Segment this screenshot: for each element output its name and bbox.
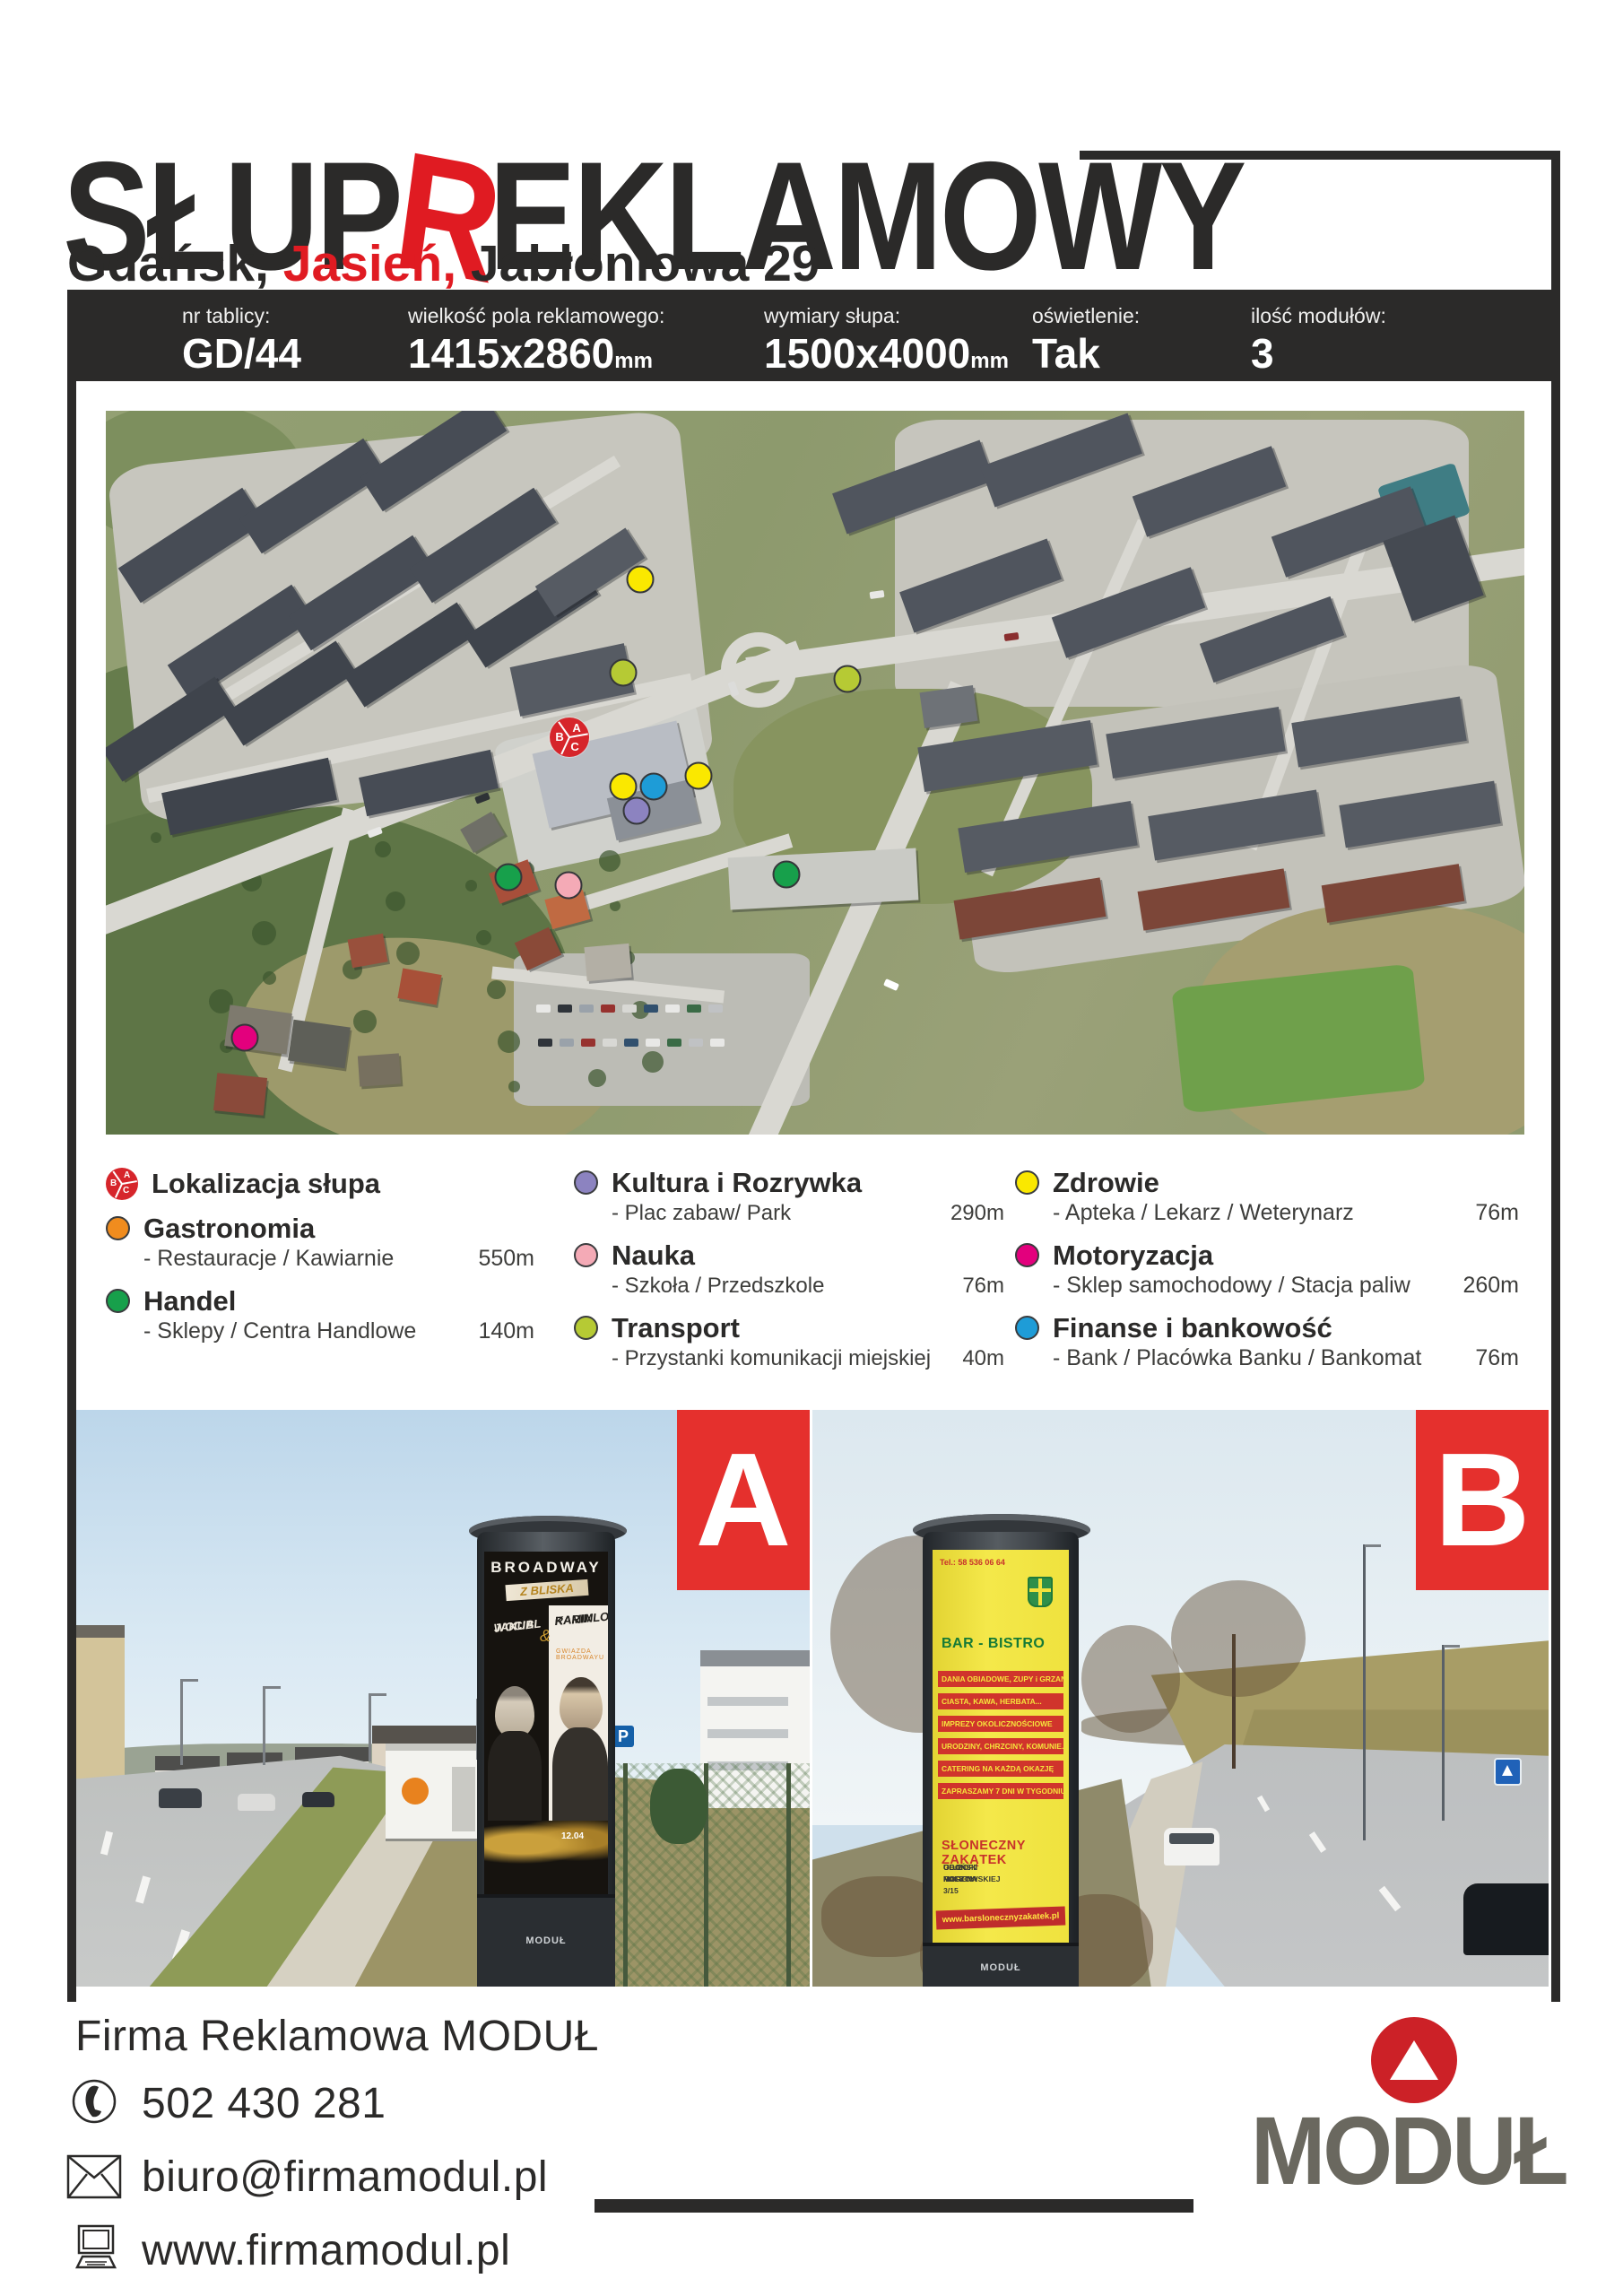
column-location-marker: BAC bbox=[550, 717, 589, 757]
info-value: 1500x4000 bbox=[764, 330, 970, 377]
legend-distance: 40m bbox=[953, 1344, 1004, 1372]
fence-post bbox=[623, 1763, 628, 1987]
handel-marker bbox=[773, 861, 801, 889]
parking-sign: P bbox=[612, 1726, 634, 1747]
poster-bar-bistro: Tel.: 58 536 06 64 BAR - BISTRO DANIA OB… bbox=[933, 1550, 1069, 1943]
photo-a-label: A bbox=[677, 1410, 810, 1590]
legend-distance: 550m bbox=[469, 1245, 534, 1273]
legend-item-finanse: Finanse i bankowość - Bank / Placówka Ba… bbox=[1015, 1311, 1519, 1372]
legend-name: Zdrowie bbox=[1053, 1166, 1519, 1199]
legend-item-motoryzacja: Motoryzacja - Sklep samochodowy / Stacja… bbox=[1015, 1239, 1519, 1300]
finanse-marker bbox=[639, 772, 667, 800]
tree-twigs bbox=[1171, 1580, 1306, 1697]
kultura-marker bbox=[622, 797, 650, 825]
legend-name: Finanse i bankowość bbox=[1053, 1311, 1519, 1344]
car bbox=[238, 1794, 275, 1811]
column-body: Tel.: 58 536 06 64 BAR - BISTRO DANIA OB… bbox=[923, 1532, 1079, 1987]
email-address[interactable]: biuro@firmamodul.pl bbox=[142, 2152, 548, 2202]
website-icon bbox=[70, 2224, 120, 2271]
modul-logo-icon bbox=[1371, 2017, 1457, 2103]
subtitle-district: Jasień, bbox=[283, 235, 456, 292]
car bbox=[302, 1792, 334, 1807]
legend-desc: - Bank / Placówka Banku / Bankomat bbox=[1053, 1344, 1421, 1372]
poster-phone: Tel.: 58 536 06 64 bbox=[940, 1558, 1005, 1567]
modul-logo-text: MODUŁ bbox=[1251, 2100, 1560, 2201]
transport-marker bbox=[610, 659, 638, 687]
legend-distance: 260m bbox=[1454, 1272, 1519, 1300]
legend-item-location: B A C Lokalizacja słupa bbox=[106, 1166, 534, 1200]
info-label: wymiary słupa: bbox=[764, 304, 900, 328]
info-label: ilość modułów: bbox=[1251, 304, 1386, 328]
legend-name: Lokalizacja słupa bbox=[152, 1167, 380, 1200]
poster-stripe: URODZINY, CHRZCINY, KOMUNIE... bbox=[938, 1738, 1063, 1754]
legend-name: Handel bbox=[143, 1284, 534, 1318]
poster-subtitle: Z BLISKA bbox=[520, 1581, 575, 1598]
info-value: GD/44 bbox=[182, 330, 301, 377]
satellite-map: BAC bbox=[106, 411, 1524, 1135]
legend-column-1: B A C Lokalizacja słupa Gastronomia - Re… bbox=[106, 1166, 534, 1357]
legend-item-kultura: Kultura i Rozrywka - Plac zabaw/ Park290… bbox=[574, 1166, 1004, 1227]
column-base: MODUŁ bbox=[923, 1943, 1079, 1987]
poster-tagline: GWIAZDA BROADWAYU bbox=[556, 1648, 608, 1661]
zdrowie-dot bbox=[1015, 1170, 1039, 1195]
poster-stripe: CIASTA, KAWA, HERBATA... bbox=[938, 1693, 1063, 1709]
kiosk-sign-icon bbox=[402, 1778, 429, 1805]
legend-desc: - Przystanki komunikacji miejskiej bbox=[612, 1344, 931, 1372]
column-brand: MODUŁ bbox=[980, 1962, 1020, 1973]
poster-stripe: DANIA OBIADOWE, ZUPY i GRZANE bbox=[938, 1671, 1063, 1687]
portrait-left-shoulders bbox=[488, 1731, 542, 1821]
street-lamp bbox=[180, 1679, 183, 1765]
kiosk-door bbox=[452, 1767, 475, 1831]
info-value: 3 bbox=[1251, 330, 1274, 377]
poster-stripe: ZAPRASZAMY 7 DNI W TYGODNIU bbox=[938, 1783, 1063, 1799]
subtitle-city: Gdańsk, bbox=[67, 235, 283, 292]
legend-desc: - Szkoła / Przedszkole bbox=[612, 1272, 824, 1300]
transport-marker bbox=[834, 665, 862, 693]
location-subtitle: Gdańsk, Jasień, Jabłoniowa 29 bbox=[67, 234, 820, 293]
column-base: MODUŁ bbox=[477, 1894, 615, 1987]
info-unit: mm bbox=[970, 349, 1009, 373]
icon-letter-c: C bbox=[123, 1187, 129, 1196]
footer-divider-bar bbox=[595, 2199, 1193, 2213]
legend-item-zdrowie: Zdrowie - Apteka / Lekarz / Weterynarz76… bbox=[1015, 1166, 1519, 1227]
white-van bbox=[1164, 1828, 1219, 1865]
location-photo-a: P BROADWAY Z BLISKA JAKUBWOCIAL & RAMI bbox=[76, 1410, 810, 1987]
legend-desc: - Plac zabaw/ Park bbox=[612, 1199, 791, 1227]
legend-desc: - Restauracje / Kawiarnie bbox=[143, 1245, 394, 1273]
legend-name: Motoryzacja bbox=[1053, 1239, 1519, 1272]
email-icon bbox=[66, 2154, 122, 2199]
kultura-dot bbox=[574, 1170, 598, 1195]
evergreen-bush bbox=[650, 1769, 707, 1844]
finanse-dot bbox=[1015, 1316, 1039, 1340]
info-label: oświetlenie: bbox=[1032, 304, 1140, 328]
frame-top-line bbox=[1080, 151, 1560, 160]
column-body: BROADWAY Z BLISKA JAKUBWOCIAL & RAMINKAR… bbox=[477, 1532, 615, 1987]
street-lamp bbox=[1363, 1544, 1366, 1840]
flyer-page: SŁUPREKLAMOWY Gdańsk, Jasień, Jabłoniowa… bbox=[0, 0, 1623, 2296]
column-location-icon: B A C bbox=[106, 1168, 138, 1200]
nauka-marker bbox=[554, 871, 582, 899]
legend-distance: 76m bbox=[1466, 1199, 1519, 1227]
street-lamp bbox=[369, 1693, 371, 1761]
info-bar: nr tablicy: GD/44 wielkość pola reklamow… bbox=[67, 290, 1560, 381]
frame-right-line bbox=[1551, 151, 1560, 2002]
poster-heading: BAR - BISTRO bbox=[942, 1636, 1045, 1652]
zdrowie-marker bbox=[610, 772, 638, 800]
poster-crest-icon bbox=[1028, 1577, 1053, 1607]
gastronomia-dot bbox=[106, 1216, 130, 1240]
legend-name: Transport bbox=[612, 1311, 1004, 1344]
column-brand: MODUŁ bbox=[525, 1935, 566, 1946]
legend-name: Kultura i Rozrywka bbox=[612, 1166, 1004, 1199]
legend-distance: 140m bbox=[469, 1318, 534, 1345]
photo-b-label: B bbox=[1416, 1410, 1549, 1590]
legend-distance: 290m bbox=[942, 1199, 1004, 1227]
poster-broadway: BROADWAY Z BLISKA JAKUBWOCIAL & RAMINKAR… bbox=[484, 1552, 608, 1894]
ampersand: & bbox=[540, 1627, 551, 1646]
info-value: Tak bbox=[1032, 330, 1100, 377]
info-label: wielkość pola reklamowego: bbox=[408, 304, 664, 328]
website-url[interactable]: www.firmamodul.pl bbox=[142, 2226, 510, 2275]
pedestrian-crossing-sign bbox=[1494, 1758, 1522, 1786]
legend-item-gastronomia: Gastronomia - Restauracje / Kawiarnie550… bbox=[106, 1212, 534, 1273]
subtitle-street: Jabłoniowa 29 bbox=[456, 235, 820, 292]
legend-desc: - Sklep samochodowy / Stacja paliw bbox=[1053, 1272, 1410, 1300]
car bbox=[159, 1788, 202, 1808]
legend-item-handel: Handel - Sklepy / Centra Handlowe140m bbox=[106, 1284, 534, 1345]
handel-dot bbox=[106, 1289, 130, 1313]
poster-date: 12.04 bbox=[561, 1831, 584, 1841]
phone-icon bbox=[70, 2077, 118, 2126]
motoryzacja-dot bbox=[1015, 1243, 1039, 1267]
dark-car bbox=[1463, 1883, 1549, 1955]
tree-twigs bbox=[1081, 1625, 1180, 1733]
mesh-fence bbox=[611, 1763, 810, 1987]
info-value: 1415x2860 bbox=[408, 330, 614, 377]
street-lamp bbox=[263, 1686, 265, 1765]
zdrowie-marker bbox=[627, 566, 655, 594]
fence-post bbox=[786, 1763, 791, 1987]
location-photo-b: Tel.: 58 536 06 64 BAR - BISTRO DANIA OB… bbox=[812, 1410, 1549, 1987]
legend-name: Gastronomia bbox=[143, 1212, 534, 1245]
icon-letter-a: A bbox=[124, 1171, 130, 1180]
icon-letter-b: B bbox=[110, 1179, 117, 1188]
legend-desc: - Apteka / Lekarz / Weterynarz bbox=[1053, 1199, 1354, 1227]
info-label: nr tablicy: bbox=[182, 304, 270, 328]
phone-number[interactable]: 502 430 281 bbox=[142, 2079, 386, 2128]
street-lamp bbox=[1442, 1645, 1445, 1821]
legend-desc: - Sklepy / Centra Handlowe bbox=[143, 1318, 416, 1345]
poster-stripes: DANIA OBIADOWE, ZUPY i GRZANECIASTA, KAW… bbox=[938, 1665, 1063, 1805]
company-name: Firma Reklamowa MODUŁ bbox=[75, 2012, 599, 2061]
gold-splash bbox=[484, 1821, 608, 1867]
legend-item-transport: Transport - Przystanki komunikacji miejs… bbox=[574, 1311, 1004, 1372]
legend-column-3: Zdrowie - Apteka / Lekarz / Weterynarz76… bbox=[1015, 1166, 1519, 1384]
frame-left-line bbox=[67, 290, 76, 2002]
nauka-dot bbox=[574, 1243, 598, 1267]
legend-distance: 76m bbox=[1466, 1344, 1519, 1372]
legend-name: Nauka bbox=[612, 1239, 1004, 1272]
poster-title: BROADWAY bbox=[484, 1559, 608, 1577]
poster-url[interactable]: www.barslonecznyzakatek.pl bbox=[936, 1906, 1066, 1929]
portrait-right bbox=[560, 1677, 603, 1733]
zdrowie-marker bbox=[685, 761, 713, 789]
legend-distance: 76m bbox=[953, 1272, 1004, 1300]
transport-dot bbox=[574, 1316, 598, 1340]
handel-marker bbox=[495, 863, 523, 891]
motoryzacja-marker bbox=[231, 1023, 259, 1051]
legend-column-2: Kultura i Rozrywka - Plac zabaw/ Park290… bbox=[574, 1166, 1004, 1384]
poster-stripe: IMPREZY OKOLICZNOŚCIOWE bbox=[938, 1716, 1063, 1732]
poster-subtitle-brush: Z BLISKA bbox=[505, 1579, 588, 1601]
info-unit: mm bbox=[614, 349, 653, 373]
legend-item-nauka: Nauka - Szkoła / Przedszkole76m bbox=[574, 1239, 1004, 1300]
poster-stripe: CATERING NA KAŻDĄ OKAZJĘ bbox=[938, 1761, 1063, 1777]
portrait-right-shoulders bbox=[552, 1727, 608, 1821]
map-markers: BAC bbox=[106, 411, 1524, 1135]
